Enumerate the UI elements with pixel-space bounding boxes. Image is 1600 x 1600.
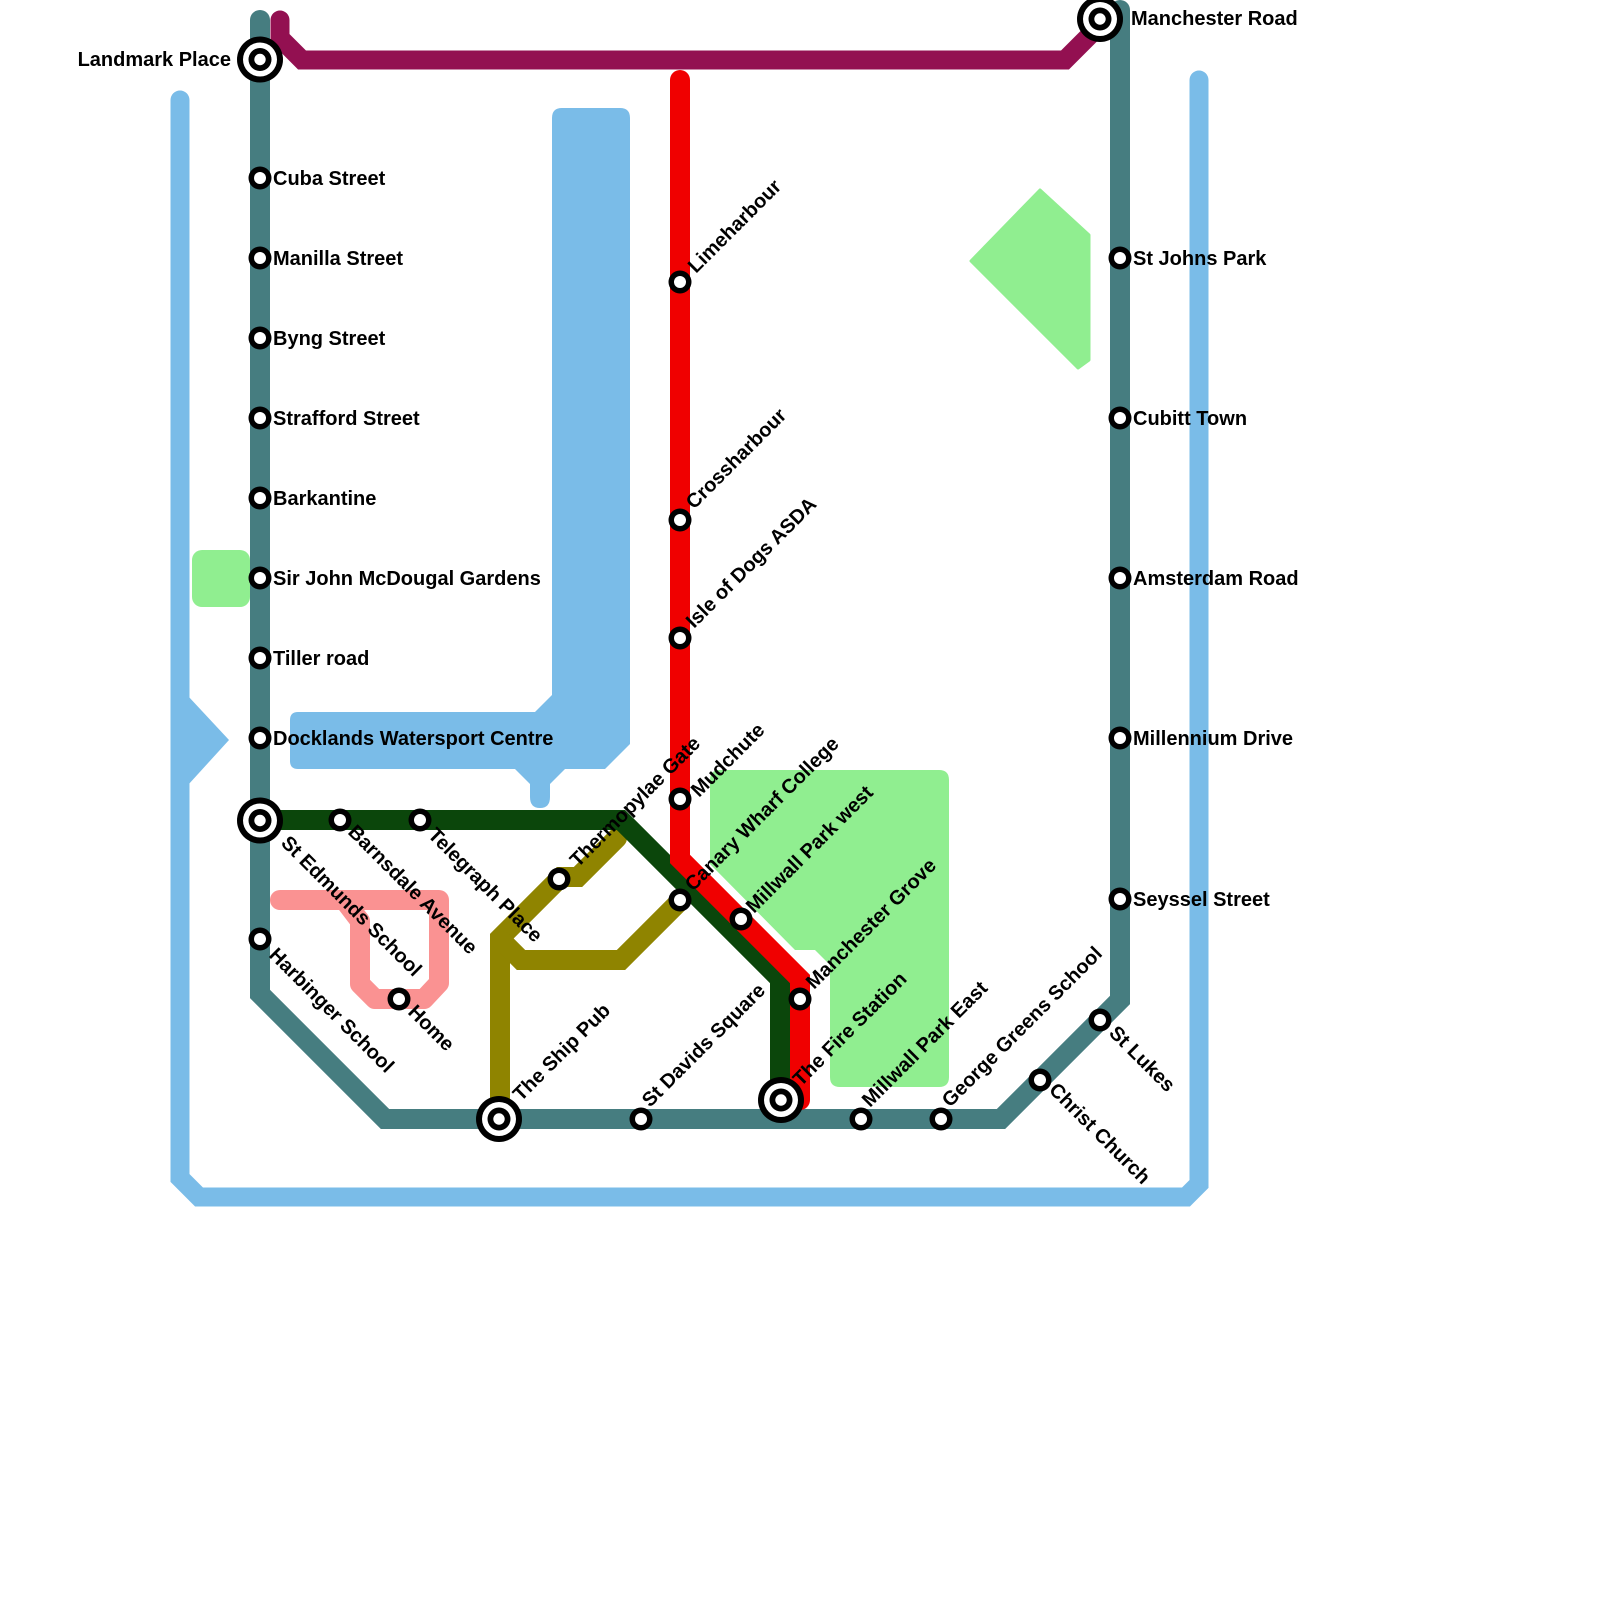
svg-text:Landmark Place: Landmark Place <box>78 49 231 71</box>
svg-text:Barkantine: Barkantine <box>273 488 376 510</box>
svg-text:Strafford Street: Strafford Street <box>273 408 420 430</box>
svg-text:Tiller road: Tiller road <box>273 648 369 670</box>
svg-text:Millennium Drive: Millennium Drive <box>1133 728 1293 750</box>
svg-text:Manilla Street: Manilla Street <box>273 248 403 270</box>
svg-text:St Johns Park: St Johns Park <box>1133 248 1267 270</box>
svg-text:Manchester Road: Manchester Road <box>1131 8 1298 30</box>
svg-text:Seyssel Street: Seyssel Street <box>1133 889 1270 911</box>
svg-text:Byng Street: Byng Street <box>273 328 386 350</box>
svg-text:Amsterdam Road: Amsterdam Road <box>1133 568 1299 590</box>
svg-text:Cubitt Town: Cubitt Town <box>1133 408 1247 430</box>
svg-text:Cuba Street: Cuba Street <box>273 168 386 190</box>
svg-text:Sir John McDougal Gardens: Sir John McDougal Gardens <box>273 568 541 590</box>
svg-text:Docklands Watersport Centre: Docklands Watersport Centre <box>273 728 553 750</box>
